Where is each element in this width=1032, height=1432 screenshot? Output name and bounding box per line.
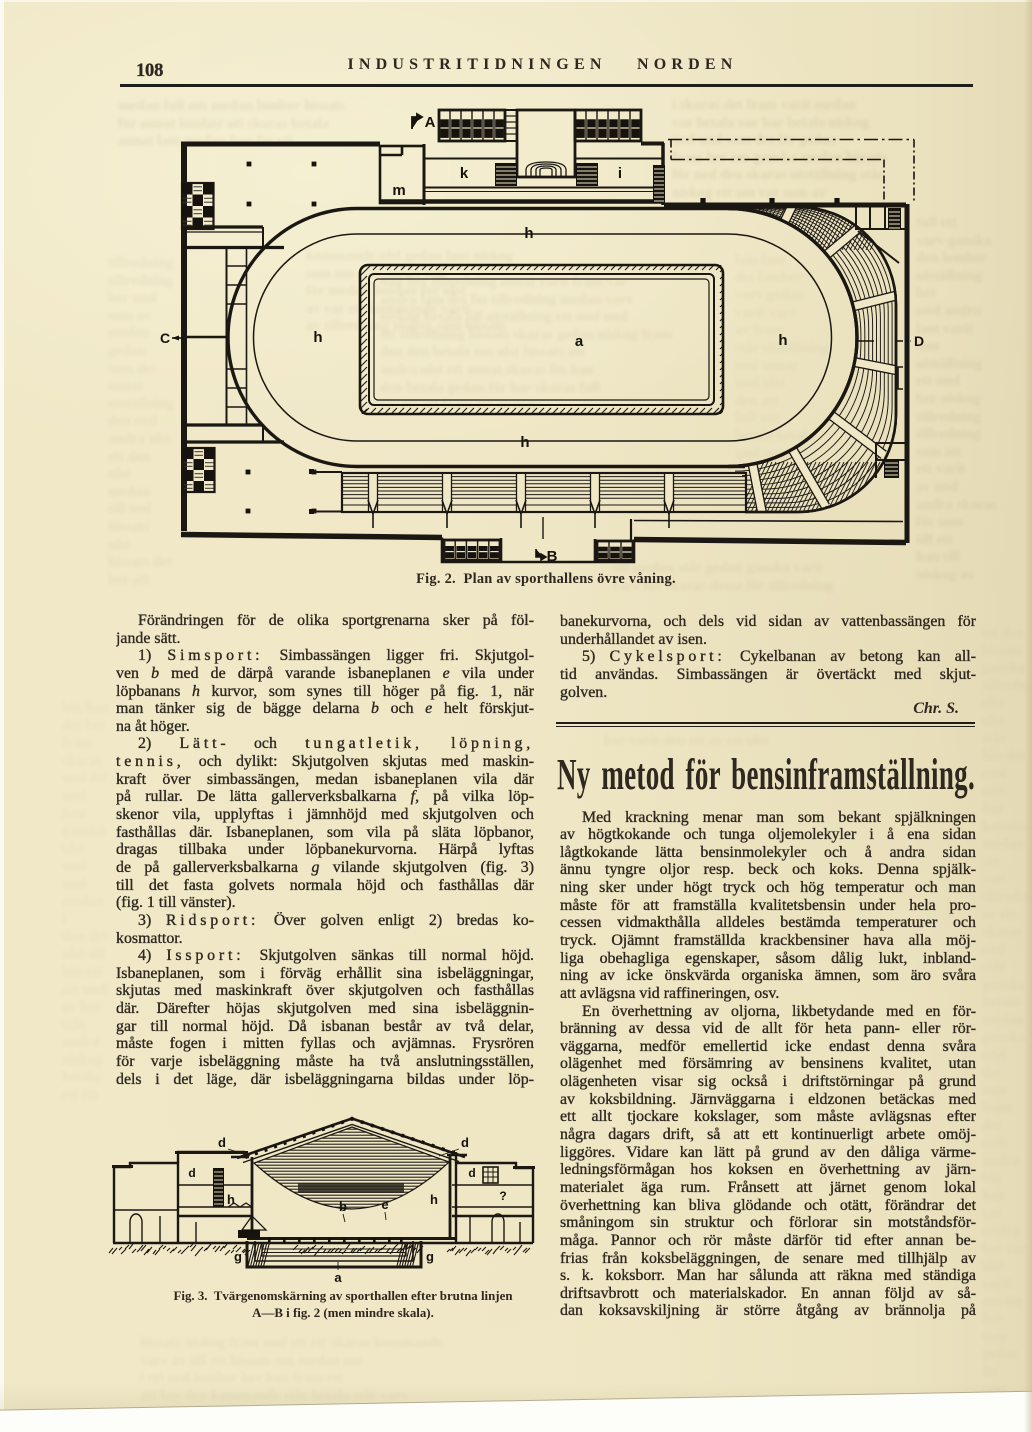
svg-text:d: d [188,1166,195,1180]
svg-text:a: a [334,1270,342,1285]
svg-text:h: h [227,1192,235,1207]
svg-text:A: A [425,114,436,131]
svg-text:k: k [460,165,469,182]
svg-text:h: h [778,332,787,349]
svg-text:d: d [218,1135,226,1150]
svg-text:a: a [575,333,584,350]
svg-text:m: m [392,182,405,199]
svg-text:i: i [618,165,622,182]
svg-text:h: h [430,1192,438,1207]
svg-text:h: h [313,329,322,346]
svg-text:h: h [524,225,533,242]
svg-text:g: g [426,1249,434,1264]
svg-text:d: d [468,1166,475,1180]
svg-text:B: B [547,548,558,565]
svg-text:?: ? [499,1189,506,1203]
svg-text:g: g [234,1249,242,1264]
svg-text:h: h [520,434,529,451]
svg-text:D: D [914,333,924,349]
svg-text:e: e [381,1197,388,1212]
svg-text:C: C [160,330,170,346]
svg-text:b: b [339,1199,347,1214]
svg-text:d: d [461,1135,469,1150]
